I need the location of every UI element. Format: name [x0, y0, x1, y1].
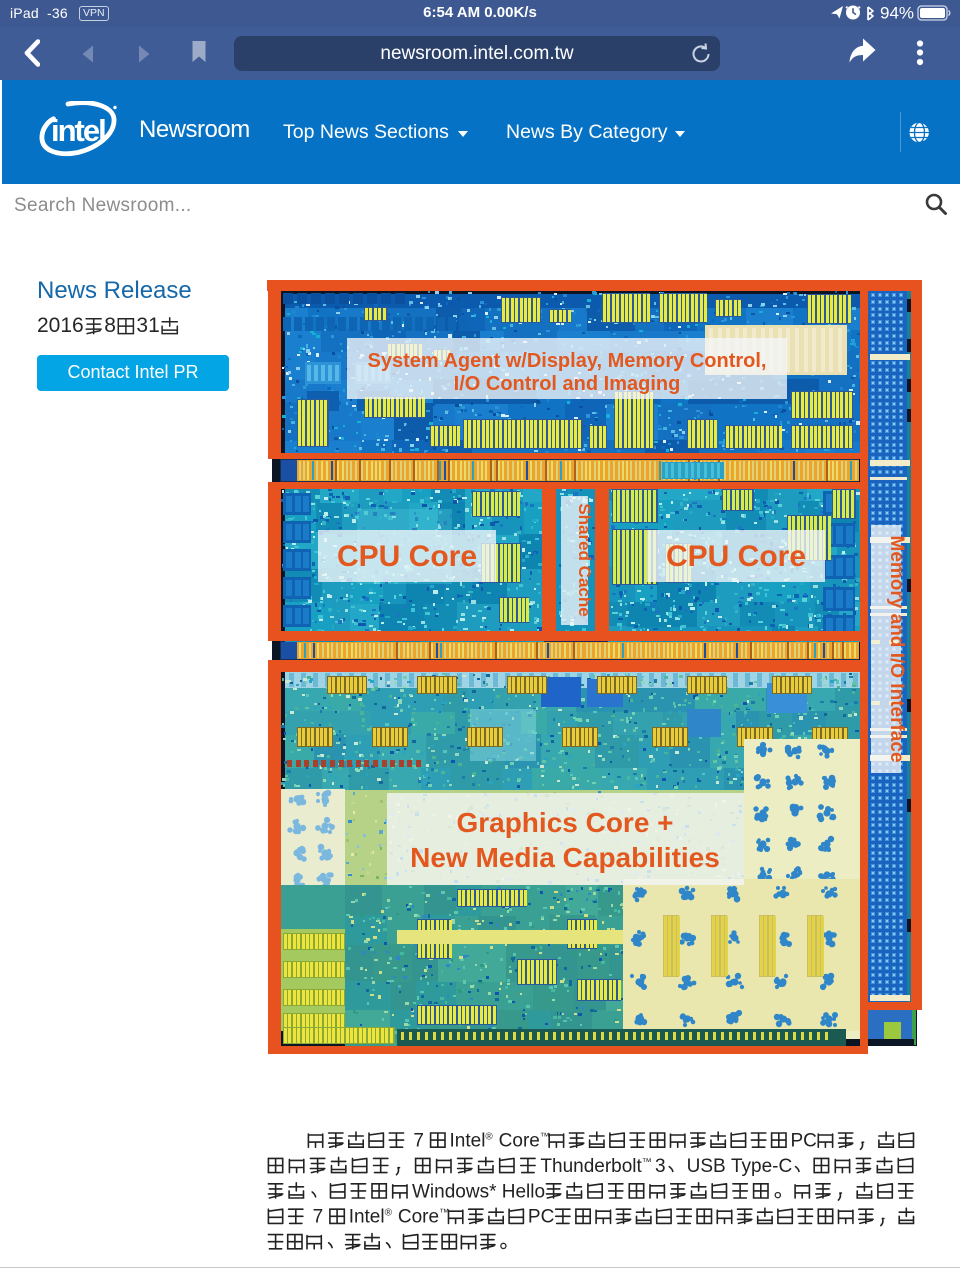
svg-text:8: 8: [104, 315, 116, 337]
svg-text:31: 31: [136, 315, 159, 337]
svg-text:2016: 2016: [37, 315, 84, 337]
svg-text:94%: 94%: [880, 4, 914, 23]
